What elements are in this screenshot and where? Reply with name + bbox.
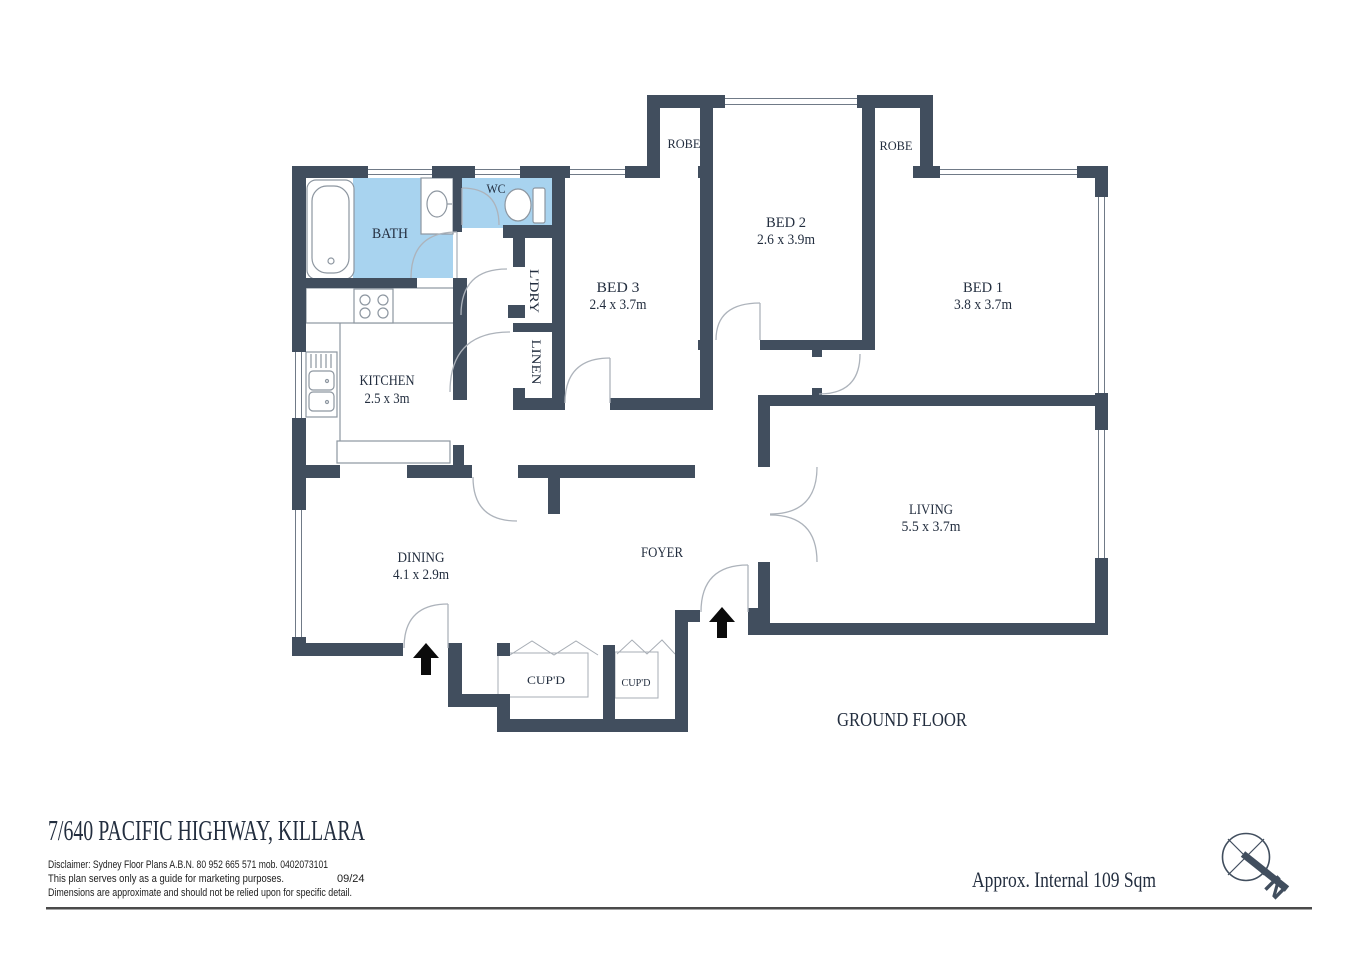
area-label: Approx. Internal 109 Sqm xyxy=(972,867,1156,892)
label-bed3: BED 3 xyxy=(597,280,640,296)
label-cupboard-left: CUP'D xyxy=(527,673,565,687)
toilet-icon xyxy=(505,188,545,223)
disclaimer-line2: This plan serves only as a guide for mar… xyxy=(48,873,284,885)
disclaimer-date: 09/24 xyxy=(337,873,365,885)
disclaimer-line3: Dimensions are approximate and should no… xyxy=(48,887,352,899)
label-linen: LINEN xyxy=(529,340,543,385)
label-robe-left: ROBE xyxy=(668,137,701,151)
bathtub-icon xyxy=(307,180,354,279)
label-foyer: FOYER xyxy=(641,545,683,561)
label-dining: DINING xyxy=(398,550,445,566)
label-cupboard-right: CUP'D xyxy=(622,678,651,689)
label-bed3-dims: 2.4 x 3.7m xyxy=(590,297,647,313)
label-bed1: BED 1 xyxy=(963,280,1003,296)
label-dining-dims: 4.1 x 2.9m xyxy=(393,567,449,583)
label-kitchen: KITCHEN xyxy=(360,373,415,389)
stove-icon xyxy=(354,289,393,323)
page-title: 7/640 PACIFIC HIGHWAY, KILLARA xyxy=(48,816,366,847)
label-living-dims: 5.5 x 3.7m xyxy=(902,519,961,535)
footer-divider xyxy=(46,907,1312,910)
label-laundry: L'DRY xyxy=(527,269,541,313)
kitchen-sink-icon xyxy=(306,352,337,417)
floorplan-svg: BATH WC L'DRY LINEN KITCHEN 2.5 x 3m BED… xyxy=(0,0,1358,960)
vanity-sink-icon xyxy=(421,178,453,234)
disclaimer-line1: Disclaimer: Sydney Floor Plans A.B.N. 80… xyxy=(48,859,328,871)
label-bath: BATH xyxy=(372,226,408,242)
floor-level-label: GROUND FLOOR xyxy=(837,709,968,731)
label-bed2: BED 2 xyxy=(766,215,806,231)
label-kitchen-dims: 2.5 x 3m xyxy=(365,391,410,407)
floorplan-page: BATH WC L'DRY LINEN KITCHEN 2.5 x 3m BED… xyxy=(0,0,1358,960)
label-wc: WC xyxy=(487,182,506,196)
label-bed1-dims: 3.8 x 3.7m xyxy=(954,297,1012,313)
label-robe-right: ROBE xyxy=(880,139,913,153)
label-bed2-dims: 2.6 x 3.9m xyxy=(757,232,815,248)
label-living: LIVING xyxy=(909,502,953,518)
